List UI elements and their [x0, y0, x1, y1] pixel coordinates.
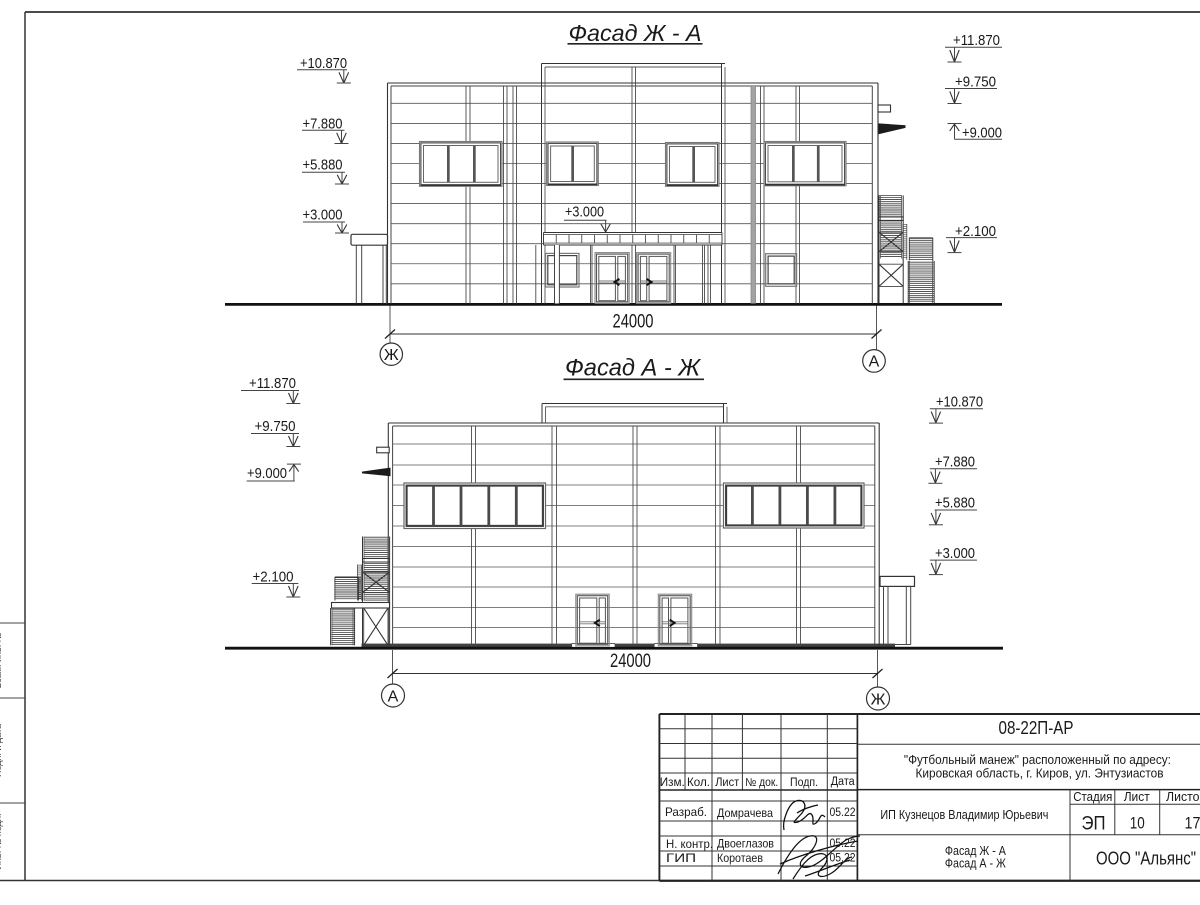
- svg-text:ГИП: ГИП: [666, 851, 696, 865]
- svg-text:+3.000: +3.000: [565, 203, 604, 220]
- svg-text:+9.000: +9.000: [247, 465, 287, 482]
- svg-text:Н. контр.: Н. контр.: [666, 837, 713, 851]
- svg-text:+3.000: +3.000: [303, 206, 343, 223]
- svg-text:Инв. № подл.: Инв. № подл.: [0, 813, 3, 869]
- svg-text:Ж: Ж: [384, 347, 399, 364]
- svg-text:Ж: Ж: [871, 691, 886, 708]
- svg-text:ИП Кузнецов Владимир Юрьевич: ИП Кузнецов Владимир Юрьевич: [880, 807, 1048, 822]
- svg-text:Кол.: Кол.: [687, 777, 710, 789]
- svg-text:Фасад А - Ж: Фасад А - Ж: [565, 355, 702, 382]
- svg-text:+11.870: +11.870: [953, 32, 1000, 49]
- svg-text:Листов: Листов: [1166, 789, 1200, 804]
- svg-text:Подп. и дата: Подп. и дата: [0, 724, 3, 777]
- svg-text:+10.870: +10.870: [936, 394, 983, 411]
- svg-text:Фасад А - Ж: Фасад А - Ж: [945, 856, 1006, 871]
- svg-text:Лист: Лист: [1124, 789, 1150, 804]
- svg-text:Двоеглазов: Двоеглазов: [717, 837, 774, 851]
- svg-text:05.22: 05.22: [830, 805, 856, 819]
- svg-text:+3.000: +3.000: [935, 545, 975, 562]
- svg-text:+5.880: +5.880: [935, 494, 975, 511]
- svg-text:08-22П-АР: 08-22П-АР: [999, 718, 1074, 738]
- svg-text:+9.000: +9.000: [962, 124, 1002, 141]
- svg-text:Домрачева: Домрачева: [717, 806, 773, 820]
- svg-text:Лист: Лист: [715, 777, 740, 789]
- svg-text:Коротаев: Коротаев: [717, 851, 763, 865]
- svg-text:ООО "Альянс": ООО "Альянс": [1096, 848, 1196, 868]
- svg-text:Дата: Дата: [831, 776, 856, 788]
- svg-text:Взам. инв. №: Взам. инв. №: [0, 632, 3, 688]
- svg-text:Изм.: Изм.: [660, 777, 685, 789]
- svg-text:ЭП: ЭП: [1082, 814, 1106, 835]
- svg-text:+9.750: +9.750: [255, 418, 296, 435]
- svg-text:24000: 24000: [610, 651, 651, 672]
- svg-text:10: 10: [1130, 815, 1145, 833]
- svg-text:+5.880: +5.880: [303, 157, 343, 174]
- svg-text:Кировская область, г. Киров, у: Кировская область, г. Киров, ул. Энтузиа…: [916, 766, 1164, 781]
- svg-text:17: 17: [1185, 815, 1200, 833]
- svg-text:Подп.: Подп.: [790, 777, 818, 789]
- svg-text:Фасад Ж - А: Фасад Ж - А: [569, 20, 702, 46]
- svg-text:А: А: [388, 688, 399, 705]
- svg-text:Разраб.: Разраб.: [665, 805, 707, 819]
- svg-text:+11.870: +11.870: [249, 375, 296, 392]
- svg-text:№ док.: № док.: [745, 777, 778, 789]
- svg-text:А: А: [869, 354, 880, 371]
- svg-text:24000: 24000: [613, 311, 654, 332]
- svg-text:+7.880: +7.880: [935, 454, 975, 471]
- svg-text:Стадия: Стадия: [1073, 789, 1112, 804]
